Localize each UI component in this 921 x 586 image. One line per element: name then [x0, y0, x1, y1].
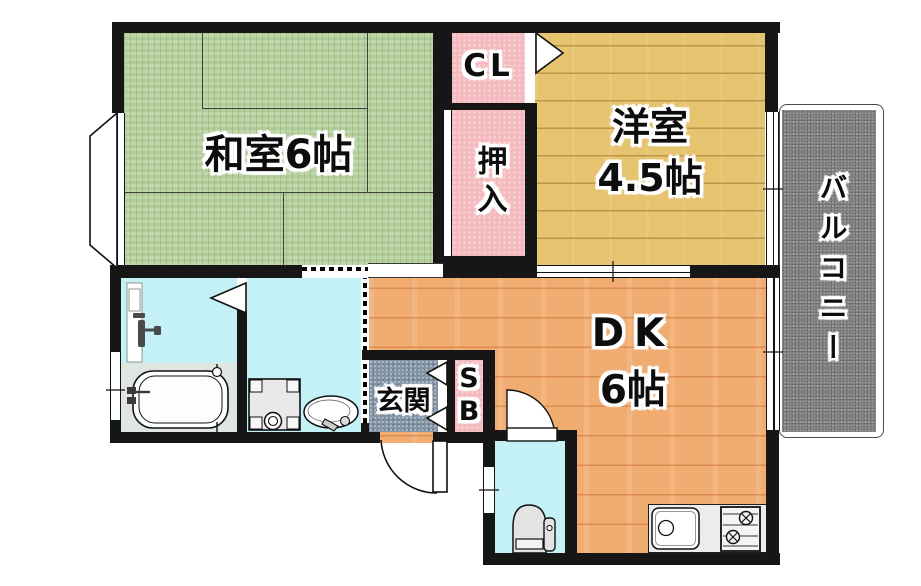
room-label-dk-line1: DK: [518, 306, 748, 363]
entrance-door-leaf: [433, 441, 447, 492]
room-label-dk: DK 6帖: [518, 306, 748, 419]
room-label-balcony: バルコニー: [779, 140, 884, 405]
gas-stove-icon: [721, 507, 760, 551]
room-label-yoshitsu-line1: 洋室: [535, 102, 765, 153]
room-label-shoebox: SB: [452, 358, 486, 434]
entrance-door-arc: [381, 440, 437, 493]
room-label-yoshitsu-line2: 4.5帖: [535, 153, 765, 204]
toilet-icon: [513, 505, 555, 553]
room-label-dk-line2: 6帖: [518, 363, 748, 420]
bathtub-icon: [127, 364, 228, 435]
kitchen-sink-icon: [652, 508, 699, 549]
toilet-door-leaf: [507, 428, 557, 441]
bay-window-outline: [90, 113, 117, 268]
room-label-oshiire: 押入: [452, 125, 525, 240]
room-label-closet: CL: [452, 48, 525, 84]
washbasin-icon: [304, 396, 358, 431]
floor-plan: 和室6帖 洋室 4.5帖 CL 押入 バルコニー DK 6帖 玄関 SB: [0, 0, 921, 586]
washing-machine-pan-icon: [249, 379, 300, 430]
closet-door-swing-icon: [536, 33, 563, 73]
room-label-genkan: 玄関: [369, 379, 438, 418]
room-label-washitsu: 和室6帖: [124, 122, 433, 180]
room-label-yoshitsu: 洋室 4.5帖: [535, 102, 765, 205]
bathroom-door-swing-icon: [211, 283, 246, 313]
